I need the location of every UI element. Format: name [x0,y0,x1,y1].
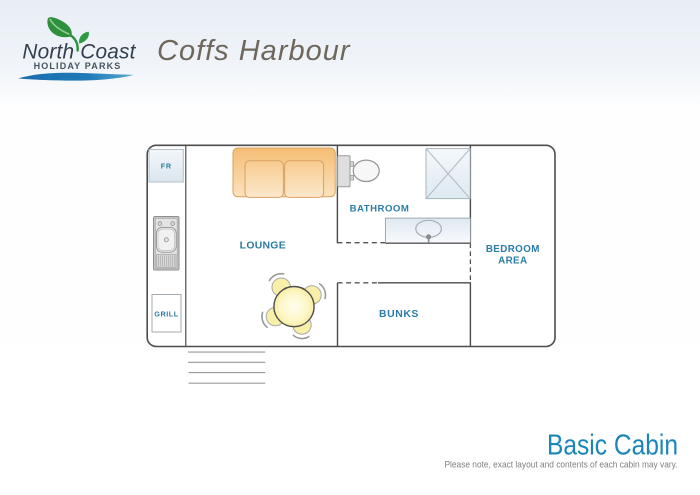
svg-text:BATHROOM: BATHROOM [350,204,410,215]
svg-text:BUNKS: BUNKS [379,309,419,320]
svg-text:GRILL: GRILL [154,310,178,319]
svg-text:Basic Cabin: Basic Cabin [547,429,678,461]
svg-text:FR: FR [161,162,172,171]
svg-text:Coffs Harbour: Coffs Harbour [157,35,351,67]
svg-text:BEDROOM: BEDROOM [486,244,540,255]
svg-text:Please note, exact layout and: Please note, exact layout and contents o… [445,459,678,469]
svg-text:AREA: AREA [498,255,527,266]
svg-text:HOLIDAY PARKS: HOLIDAY PARKS [34,61,122,71]
svg-text:LOUNGE: LOUNGE [240,240,286,251]
